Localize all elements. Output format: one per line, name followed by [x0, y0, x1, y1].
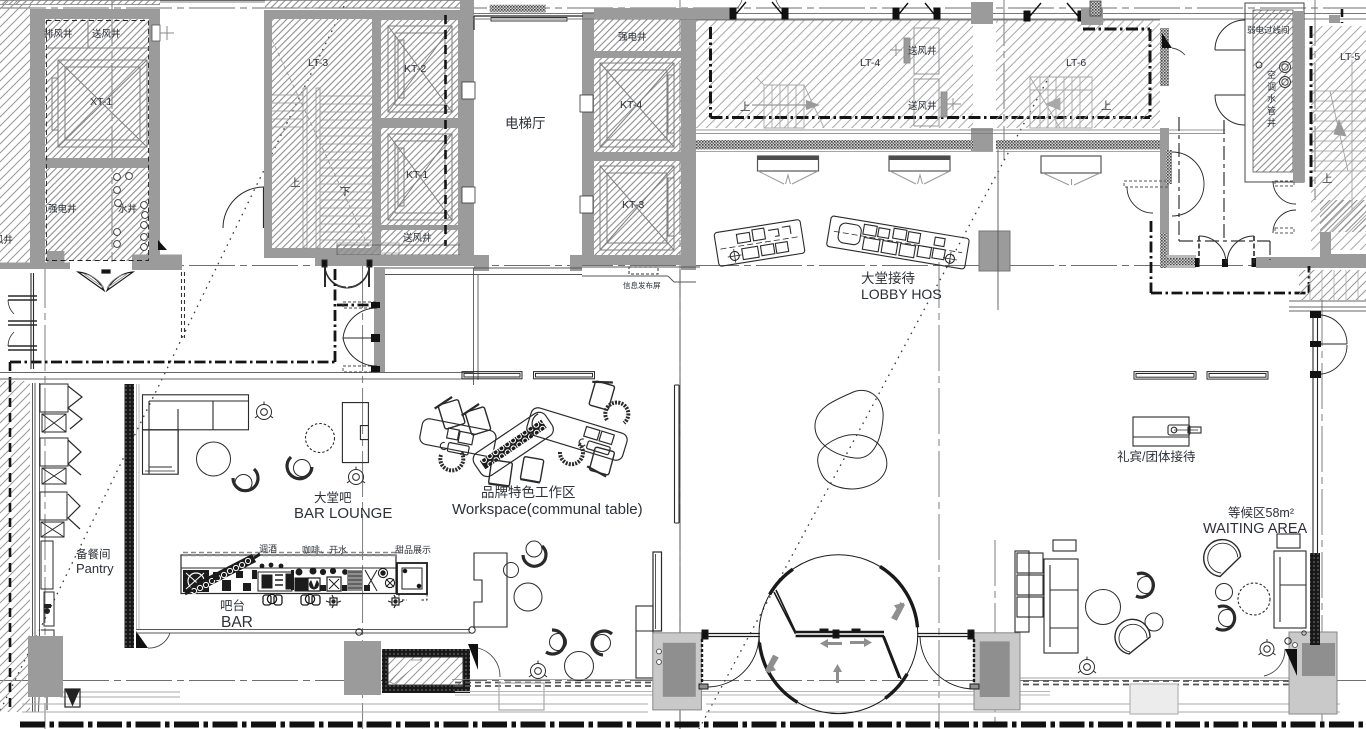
svg-text:风井: 风井 [0, 234, 13, 246]
svg-text:电梯厅: 电梯厅 [505, 116, 546, 131]
svg-text:空: 空 [1267, 69, 1276, 80]
svg-text:大堂接待: 大堂接待 [861, 270, 915, 286]
svg-text:KT-2: KT-2 [404, 63, 426, 75]
svg-text:下: 下 [340, 186, 351, 198]
svg-text:强电井: 强电井 [48, 203, 77, 215]
svg-text:LT-5: LT-5 [1340, 51, 1360, 63]
svg-text:信息发布屏: 信息发布屏 [623, 280, 661, 290]
svg-text:礼宾/团体接待: 礼宾/团体接待 [1117, 449, 1196, 464]
svg-text:送风井: 送风井 [403, 232, 432, 244]
svg-text:送风井: 送风井 [908, 45, 937, 57]
svg-text:调: 调 [1267, 82, 1276, 92]
svg-text:备餐间: 备餐间 [76, 547, 111, 561]
svg-text:LT-6: LT-6 [1066, 57, 1086, 69]
svg-text:咖啡、开水: 咖啡、开水 [302, 544, 347, 555]
svg-text:管: 管 [1267, 105, 1276, 116]
svg-text:Workspace(communal table): Workspace(communal table) [452, 501, 643, 518]
svg-text:Pantry: Pantry [76, 561, 114, 576]
svg-text:甜品展示: 甜品展示 [395, 544, 431, 555]
svg-text:等候区58m²: 等候区58m² [1228, 505, 1294, 520]
svg-text:KT-1: KT-1 [406, 169, 428, 181]
svg-text:水: 水 [1267, 93, 1276, 104]
svg-text:弱电过线间: 弱电过线间 [1247, 25, 1290, 35]
svg-text:品牌特色工作区: 品牌特色工作区 [481, 484, 576, 500]
svg-text:上: 上 [1322, 173, 1333, 185]
svg-text:井: 井 [1267, 117, 1276, 128]
svg-text:LT-4: LT-4 [860, 57, 880, 69]
svg-text:WAITING AREA: WAITING AREA [1203, 521, 1308, 537]
svg-text:大堂吧: 大堂吧 [314, 491, 352, 505]
svg-text:上: 上 [290, 177, 301, 189]
svg-text:调酒: 调酒 [259, 544, 277, 554]
svg-text:吧台: 吧台 [220, 598, 245, 613]
svg-text:BAR: BAR [221, 614, 253, 631]
svg-text:XT-1: XT-1 [90, 96, 112, 108]
svg-text:LOBBY HOS: LOBBY HOS [861, 286, 942, 302]
svg-text:KT-3: KT-3 [622, 199, 644, 211]
svg-text:上: 上 [740, 101, 751, 113]
svg-text:送风井: 送风井 [92, 28, 121, 40]
svg-text:送风井: 送风井 [908, 100, 937, 112]
svg-text:BAR LOUNGE: BAR LOUNGE [294, 505, 392, 522]
svg-text:强电井: 强电井 [618, 31, 647, 43]
svg-text:上: 上 [1101, 100, 1112, 112]
svg-text:LT-3: LT-3 [308, 57, 328, 69]
svg-text:KT-4: KT-4 [620, 99, 642, 111]
svg-text:排风井: 排风井 [44, 28, 73, 40]
